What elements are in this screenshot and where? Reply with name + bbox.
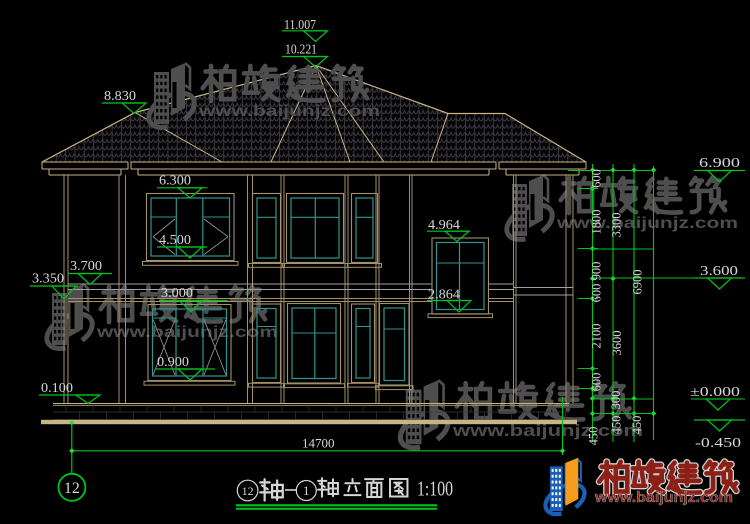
svg-text:3.600: 3.600 xyxy=(700,263,738,278)
svg-text:3600: 3600 xyxy=(610,331,624,356)
svg-text:11.007: 11.007 xyxy=(284,17,316,32)
svg-text:600: 600 xyxy=(590,373,604,392)
svg-text:6.300: 6.300 xyxy=(159,173,191,188)
svg-text:1800: 1800 xyxy=(590,210,604,235)
svg-text:600: 600 xyxy=(590,169,604,188)
svg-text:10.221: 10.221 xyxy=(285,42,317,57)
svg-text:www.baijunjz.com: www.baijunjz.com xyxy=(556,215,738,232)
svg-text:14700: 14700 xyxy=(302,436,335,451)
svg-text:450: 450 xyxy=(587,427,601,446)
svg-text:-0.450: -0.450 xyxy=(695,435,741,450)
svg-text:www.baijunjz.com: www.baijunjz.com xyxy=(198,103,380,120)
svg-text:3300: 3300 xyxy=(610,213,624,238)
svg-text:www.baijunjz.com: www.baijunjz.com xyxy=(96,324,278,341)
svg-text:2100: 2100 xyxy=(590,324,604,349)
svg-text:6900: 6900 xyxy=(631,270,645,295)
svg-text:900: 900 xyxy=(590,262,604,281)
svg-text:www.baijunjz.com: www.baijunjz.com xyxy=(594,490,733,506)
svg-text:8.830: 8.830 xyxy=(104,88,136,103)
svg-text:4.964: 4.964 xyxy=(428,217,460,232)
svg-text:450: 450 xyxy=(610,416,624,435)
svg-text:±0.000: ±0.000 xyxy=(690,384,740,399)
svg-text:4.500: 4.500 xyxy=(159,232,191,247)
svg-text:12: 12 xyxy=(242,484,254,498)
svg-text:2.864: 2.864 xyxy=(428,287,460,302)
svg-text:300: 300 xyxy=(609,391,623,410)
svg-text:1:100: 1:100 xyxy=(417,477,453,501)
svg-text:0.900: 0.900 xyxy=(157,354,189,369)
svg-text:3.000: 3.000 xyxy=(161,285,193,300)
svg-text:3.700: 3.700 xyxy=(70,258,102,273)
svg-text:6.900: 6.900 xyxy=(699,155,740,170)
svg-text:450: 450 xyxy=(630,416,644,435)
svg-text:600: 600 xyxy=(590,284,604,303)
svg-text:12: 12 xyxy=(64,480,80,497)
svg-text:3.350: 3.350 xyxy=(32,271,64,286)
svg-text:0.100: 0.100 xyxy=(41,380,73,395)
svg-text:1: 1 xyxy=(303,483,310,498)
